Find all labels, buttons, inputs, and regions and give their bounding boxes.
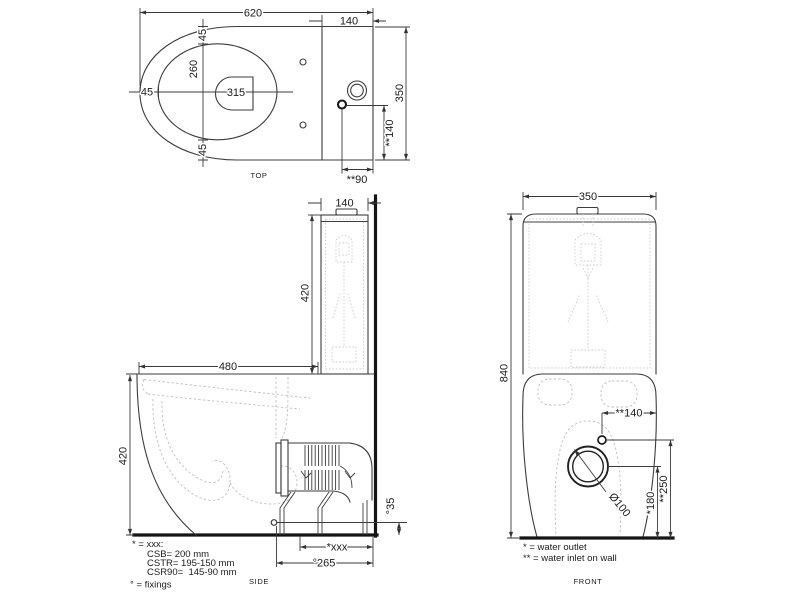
seat-hidden-left	[538, 379, 572, 405]
dim-420c: 420	[300, 284, 312, 302]
dim-315: 315	[227, 87, 245, 99]
dim-350f: 350	[579, 191, 597, 203]
legend-water-outlet: * = water outlet	[523, 542, 587, 553]
seat-outline	[523, 374, 656, 396]
dim-265: °265	[313, 558, 336, 570]
pedestal-hidden-outline	[555, 421, 621, 534]
fixing-hole	[300, 122, 306, 128]
floor-fixing-point	[271, 520, 277, 526]
dim-90: **90	[347, 174, 368, 186]
side-view: 140 420 480 420 °35 *xxx °265 * = xxx: C…	[118, 196, 408, 591]
top-view-label: TOP	[250, 171, 267, 180]
flush-mechanism-hidden	[326, 219, 364, 369]
dim-dia100: Ø100	[606, 491, 632, 519]
toilet-dimension-drawing: 620 140 45 260 315 45 45 350 **140 **90 …	[0, 0, 800, 600]
top-view: 620 140 45 260 315 45 45 350 **140 **90 …	[129, 8, 410, 187]
dim-140v-ext	[347, 106, 388, 161]
bowl-profile	[137, 374, 196, 535]
flush-button	[336, 209, 357, 215]
water-outlet-outer	[568, 447, 608, 487]
inlet-valve-inner	[351, 84, 364, 97]
dim-250: **250	[658, 476, 670, 503]
wall-inlet-point	[338, 101, 346, 109]
dim-xxx: *xxx	[327, 542, 348, 554]
outlet-pipe	[276, 440, 372, 535]
front-view-label: FRONT	[574, 577, 603, 586]
dim-840: 840	[499, 364, 511, 382]
dim-260: 260	[188, 60, 200, 78]
dim-45-top: 45	[197, 29, 209, 41]
dim-140s: 140	[335, 198, 353, 210]
water-inlet-hole	[598, 436, 606, 444]
fixing-hole	[300, 59, 306, 65]
pedestal-left-edge	[523, 396, 537, 537]
side-legend: * = xxx: CSB= 200 mm CSTR= 195-150 mm CS…	[130, 539, 237, 591]
front-legend: * = water outlet ** = water inlet on wal…	[523, 542, 617, 564]
dim-420b: 420	[118, 447, 130, 465]
pan-outline	[140, 27, 373, 161]
side-view-label: SIDE	[249, 577, 269, 586]
seat-hidden-right	[601, 381, 637, 407]
dim-620: 620	[244, 8, 262, 20]
dim-180: *180	[645, 492, 657, 515]
cistern-body	[321, 215, 368, 374]
dim-90-ext	[342, 109, 373, 174]
flush-mechanism-hidden	[529, 214, 650, 368]
front-view: Ø100 350 840 **140 *180 **250 * = water …	[499, 191, 675, 586]
legend-water-inlet: ** = water inlet on wall	[523, 553, 617, 564]
dim-140f: **140	[616, 408, 643, 420]
dim-480: 480	[219, 361, 237, 373]
water-outlet-inner	[573, 451, 604, 482]
dim-45-bottom: 45	[197, 144, 209, 156]
legend-csr90: CSR90= 145-90 mm	[147, 567, 237, 578]
dim-45-left: 45	[141, 87, 153, 99]
technical-drawing-page: 620 140 45 260 315 45 45 350 **140 **90 …	[0, 0, 800, 600]
dim-140v: **140	[384, 120, 396, 147]
legend-fixings: ° = fixings	[130, 580, 172, 591]
flush-button	[577, 208, 598, 215]
dim-140: 140	[340, 16, 358, 28]
dim-35: °35	[385, 498, 397, 515]
dim-350: 350	[394, 84, 406, 102]
dim-620-ext	[140, 8, 373, 86]
